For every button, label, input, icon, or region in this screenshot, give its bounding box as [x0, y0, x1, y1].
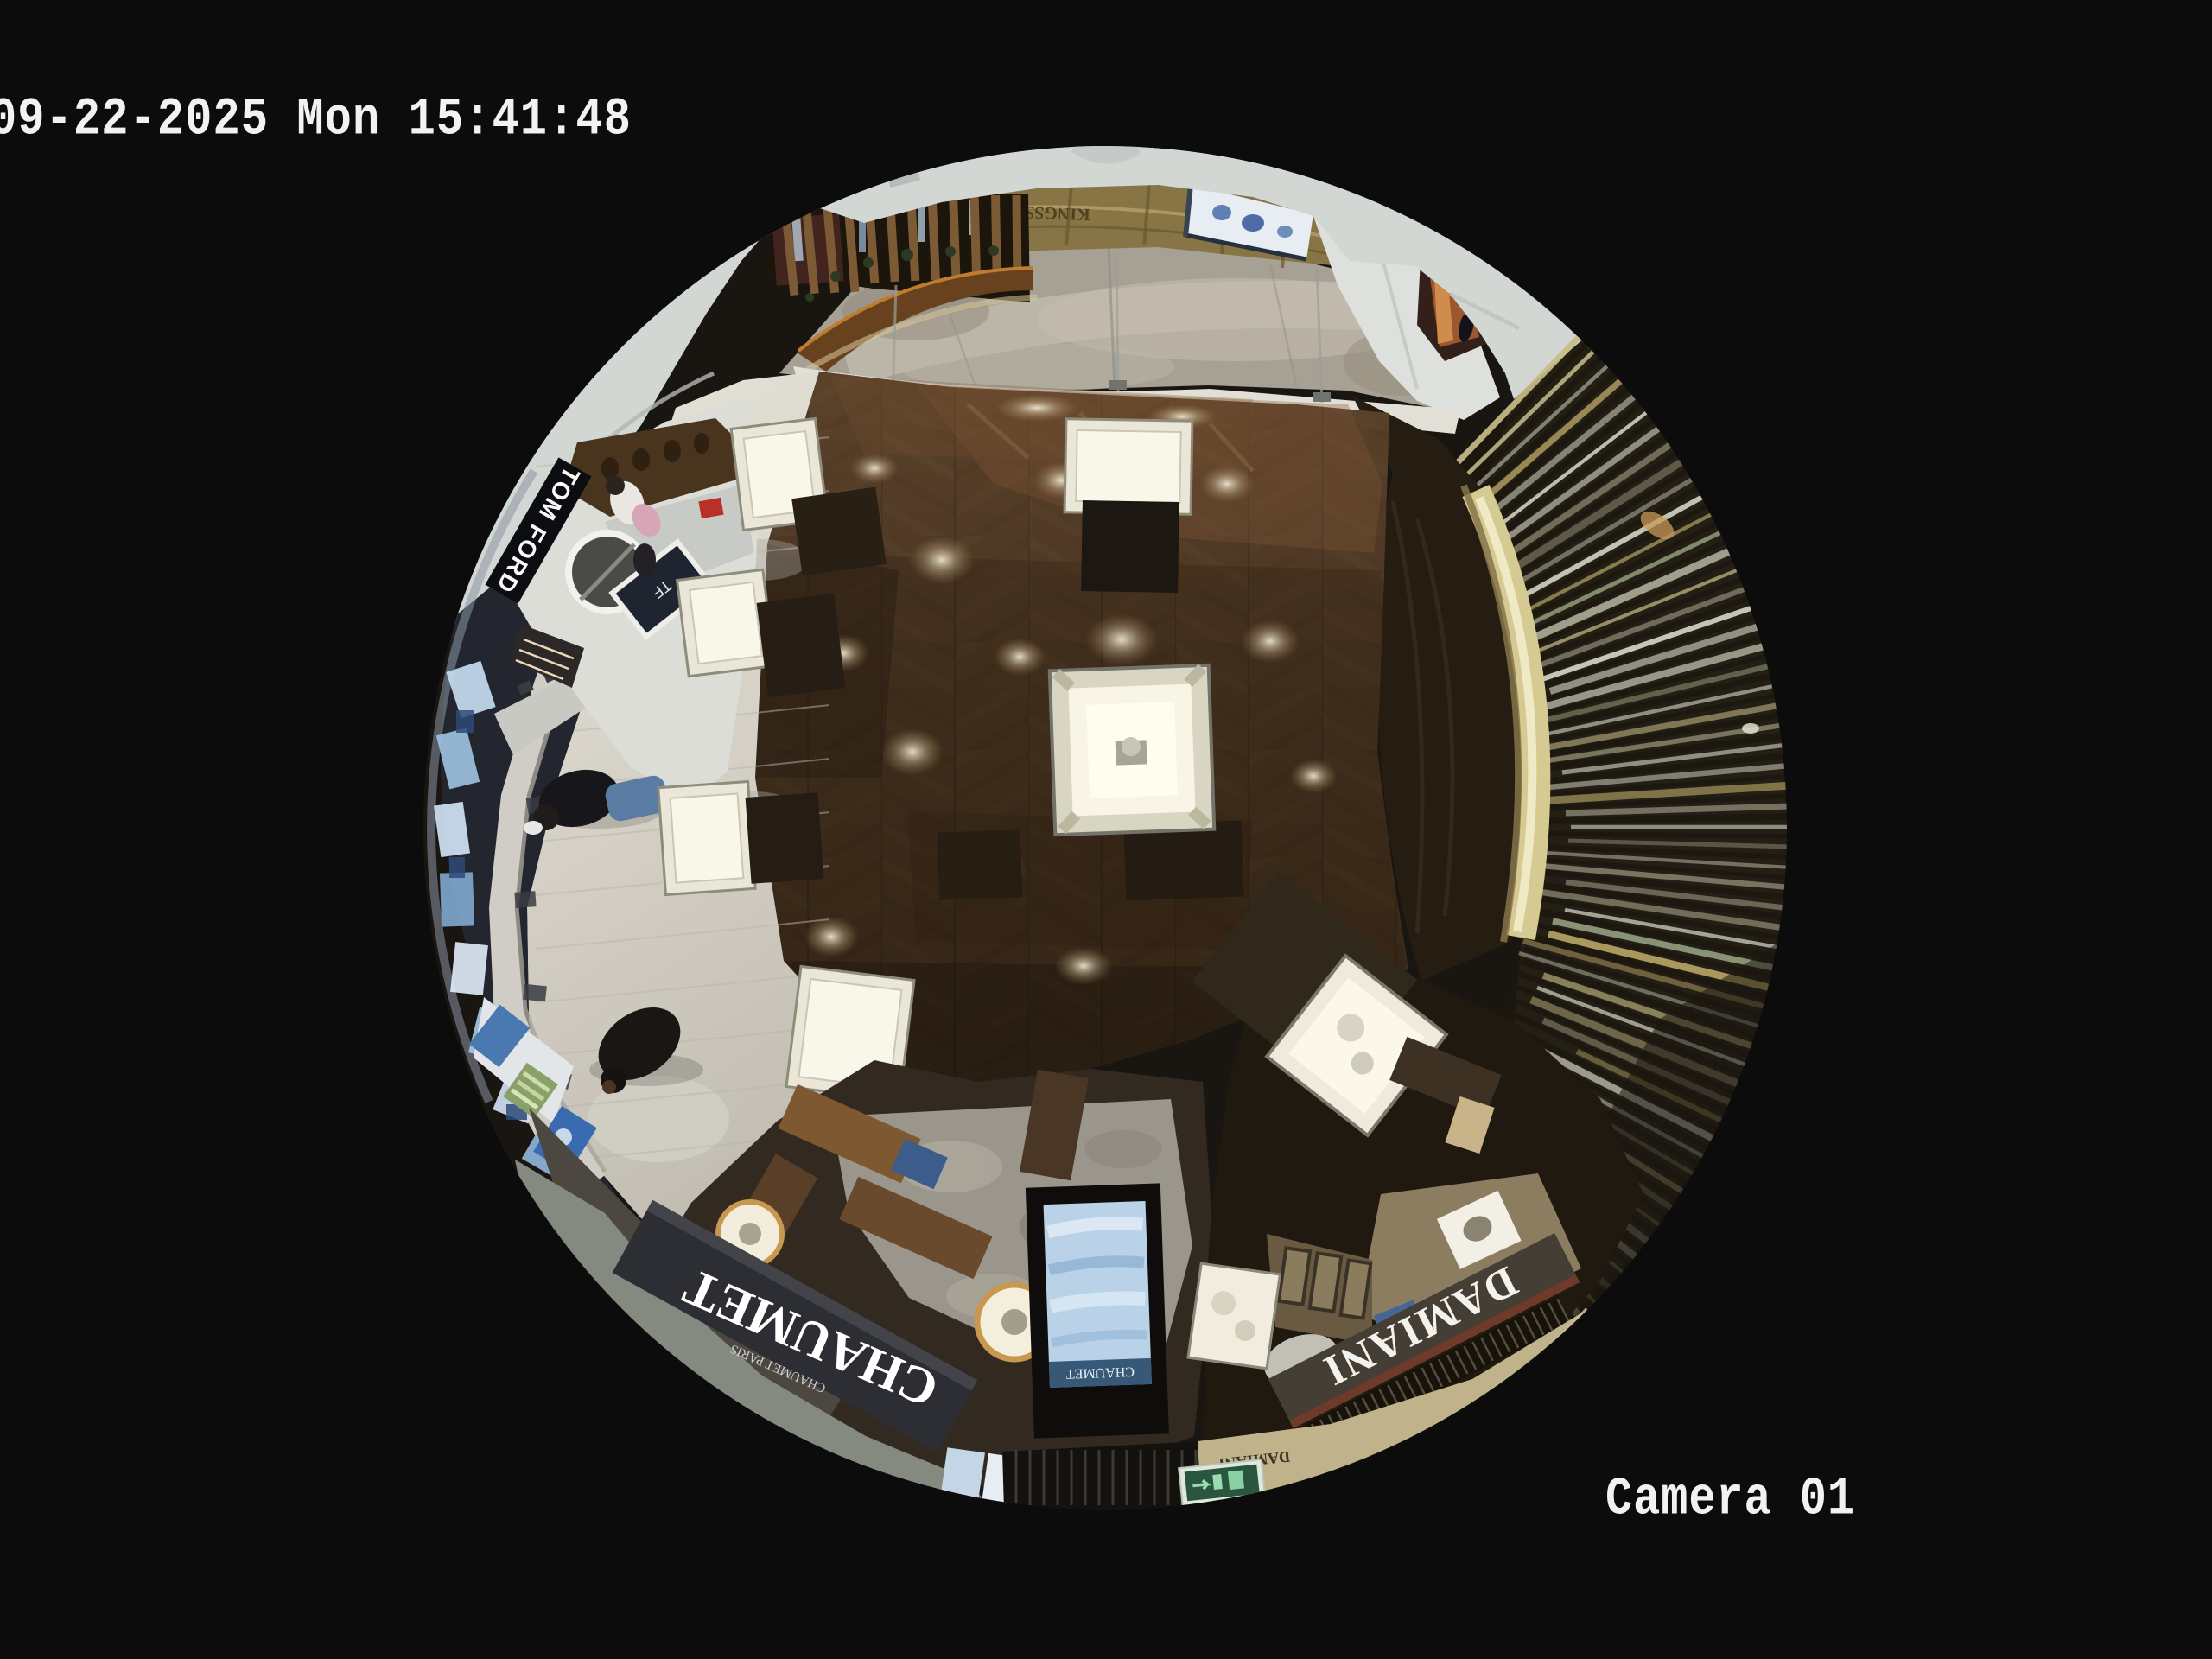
svg-text:CHAUMET: CHAUMET [1065, 1364, 1135, 1382]
